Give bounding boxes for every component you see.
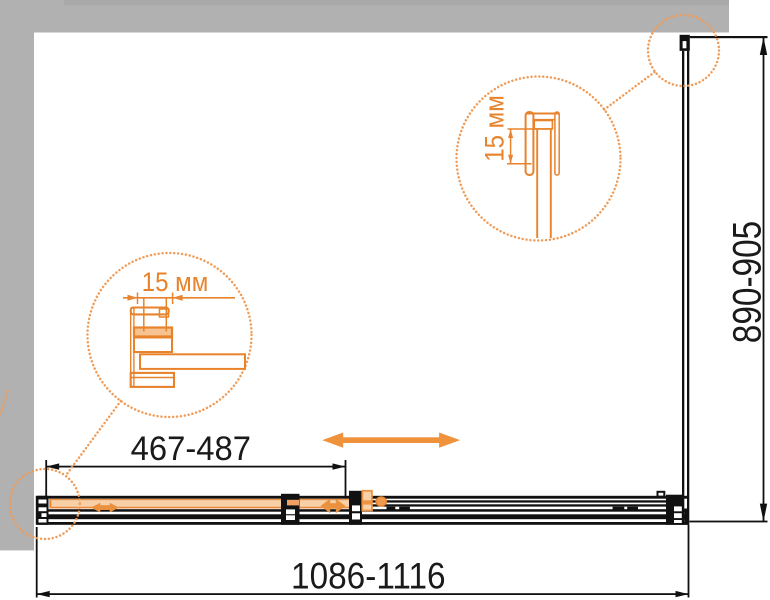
svg-text:15 мм: 15 мм [142, 267, 209, 297]
svg-text:890-905: 890-905 [726, 221, 770, 344]
svg-text:467-487: 467-487 [131, 430, 251, 468]
svg-text:15 мм: 15 мм [479, 95, 509, 162]
svg-text:1086-1116: 1086-1116 [291, 555, 446, 596]
